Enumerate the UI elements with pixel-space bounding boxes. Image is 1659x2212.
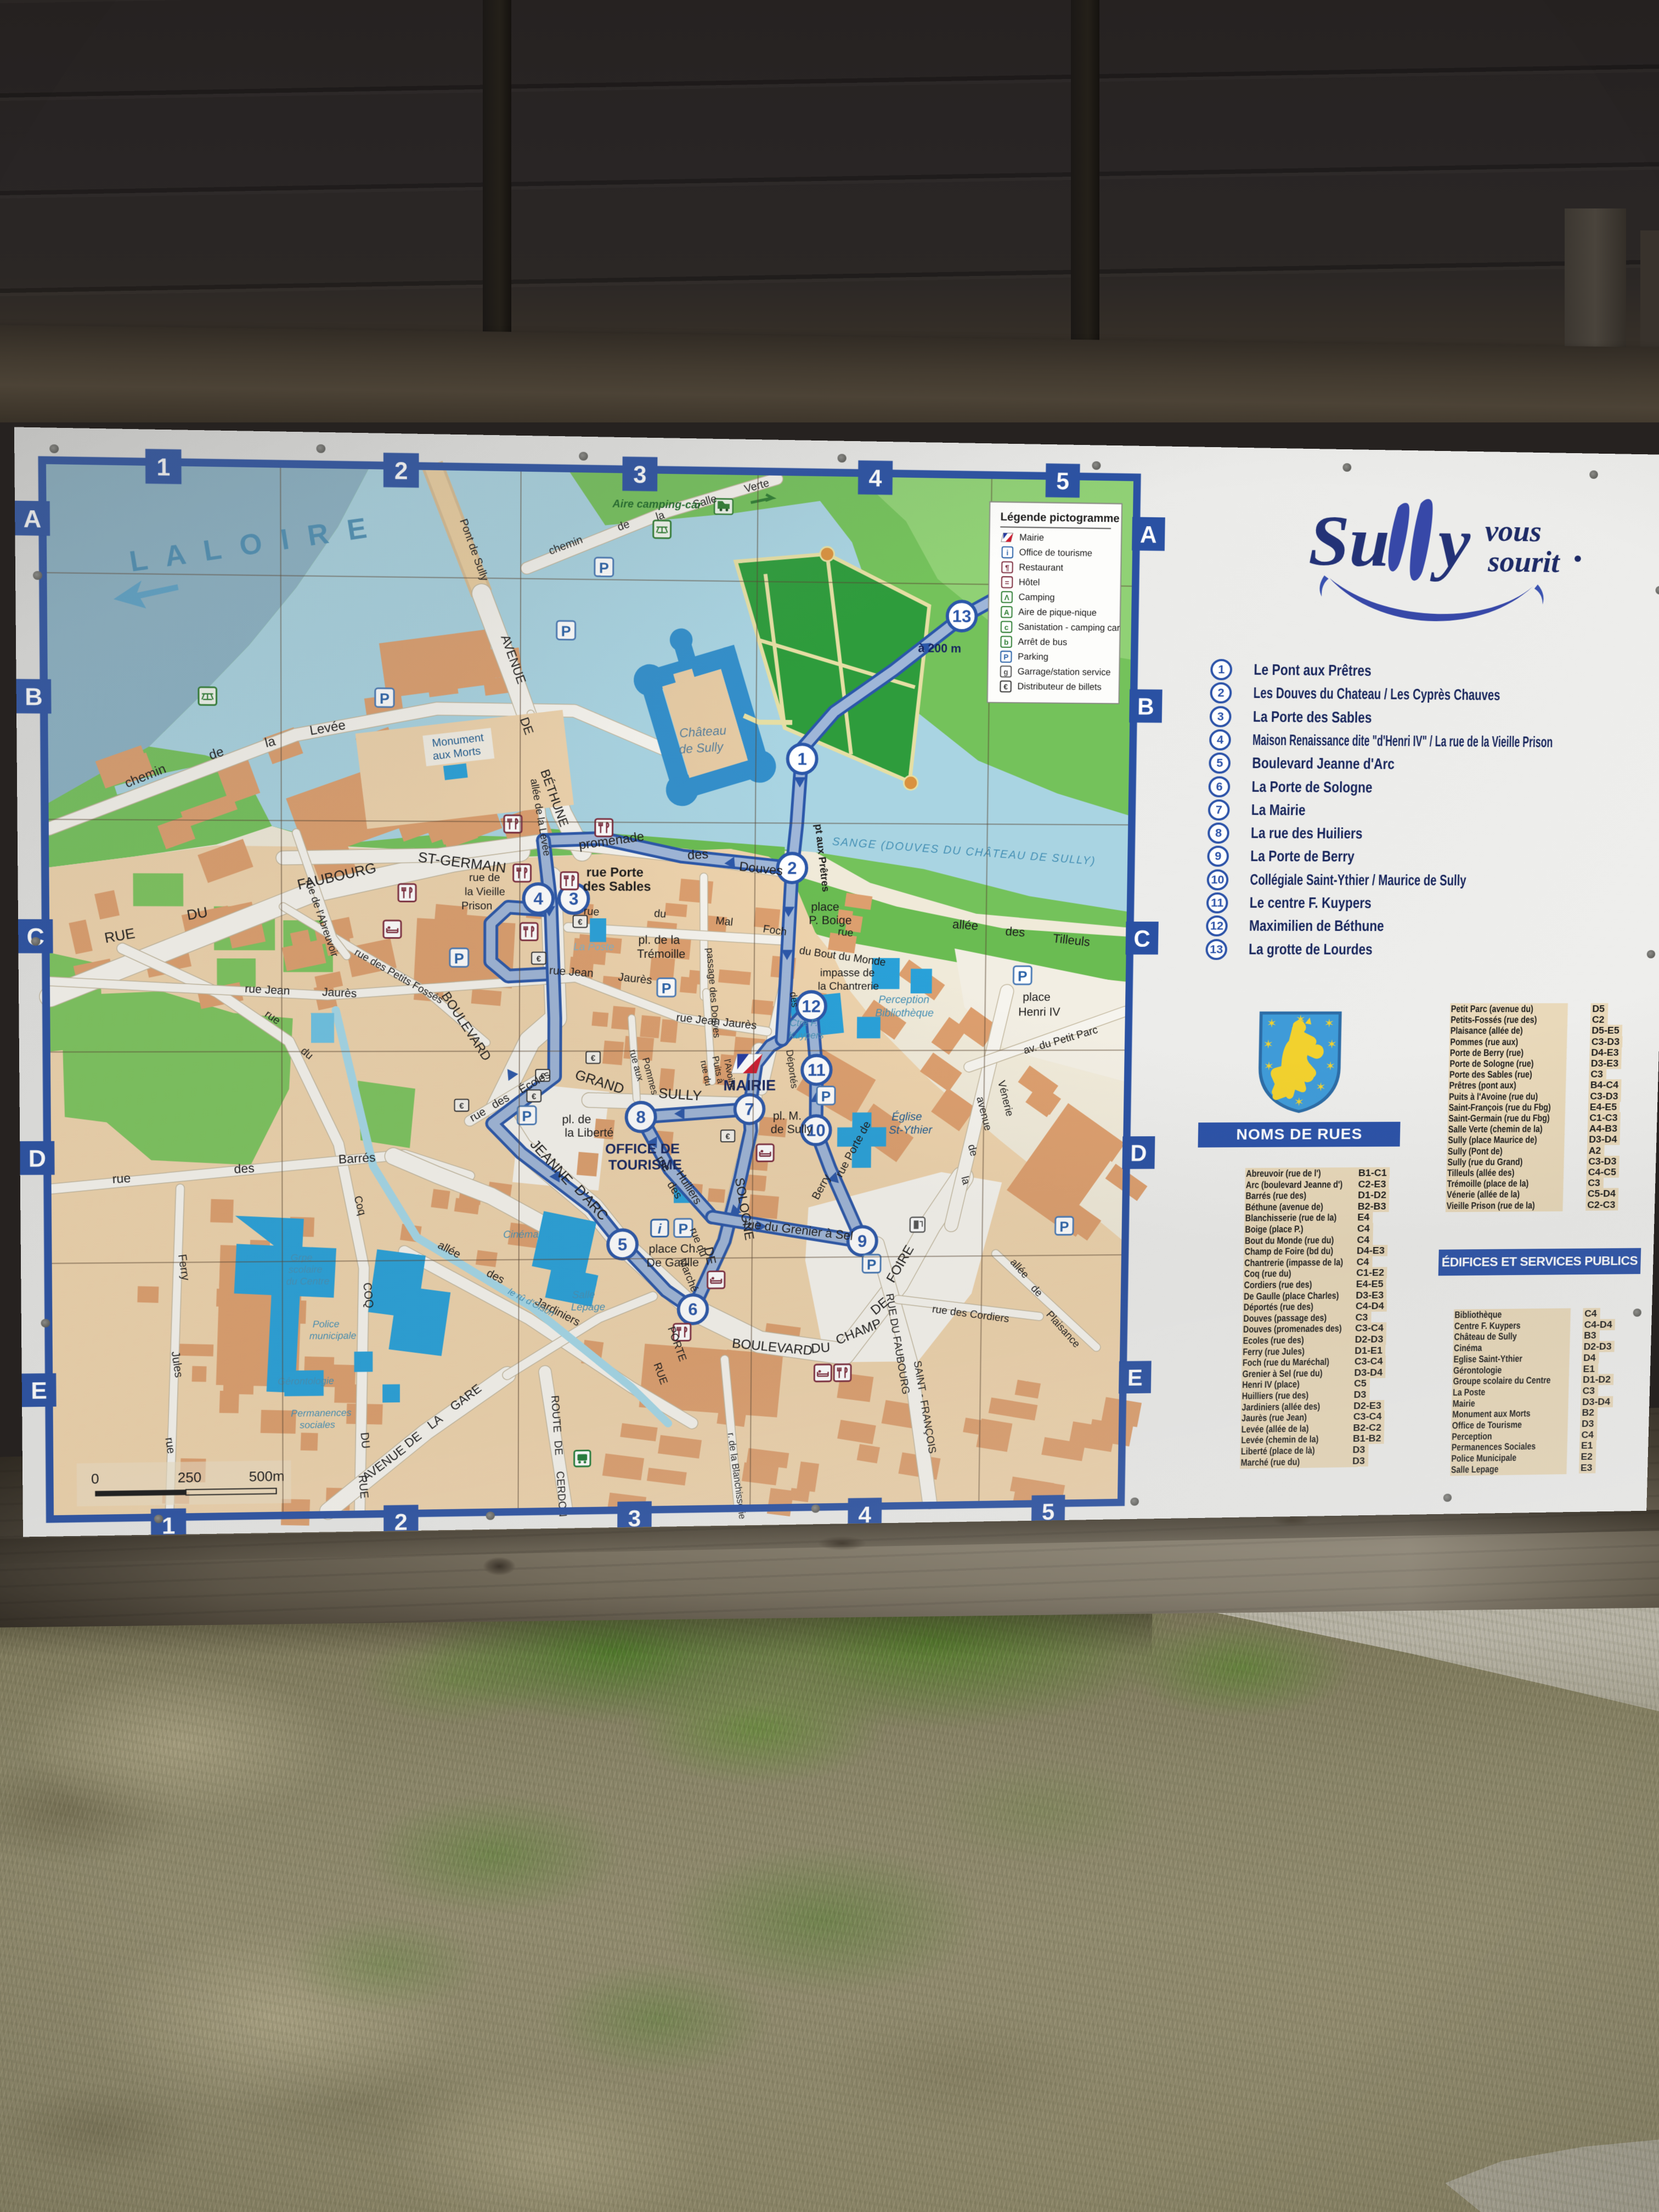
svg-text:des: des — [687, 847, 709, 862]
svg-text:scolaire: scolaire — [289, 1263, 323, 1274]
svg-text:P: P — [1003, 653, 1009, 662]
svg-text:Lepage: Lepage — [571, 1301, 605, 1313]
svg-text:5: 5 — [618, 1235, 628, 1255]
svg-text:P. Boige: P. Boige — [809, 913, 852, 927]
svg-text:1: 1 — [156, 453, 170, 481]
svg-text:B: B — [1137, 693, 1154, 720]
svg-text:€: € — [459, 1102, 464, 1110]
svg-text:ROUTE: ROUTE — [549, 1395, 563, 1433]
svg-text:€: € — [537, 955, 541, 963]
svg-text:€: € — [532, 1092, 537, 1101]
svg-text:g: g — [1003, 668, 1008, 676]
svg-text:P: P — [821, 1088, 831, 1104]
svg-text:✶: ✶ — [1316, 1081, 1326, 1094]
svg-text:✶: ✶ — [1327, 1038, 1337, 1051]
svg-text:Camping: Camping — [1018, 591, 1054, 602]
svg-text:rue: rue — [112, 1171, 131, 1187]
svg-text:Henri IV: Henri IV — [1018, 1005, 1060, 1018]
svg-text:rue Jean: rue Jean — [245, 982, 290, 997]
svg-text:pl. de: pl. de — [562, 1112, 591, 1126]
svg-text:D: D — [1130, 1140, 1147, 1166]
svg-text:Légende pictogramme: Légende pictogramme — [1000, 510, 1120, 524]
svg-text:P: P — [522, 1108, 532, 1124]
svg-text:Église: Église — [891, 1110, 922, 1123]
svg-text:c: c — [1005, 624, 1009, 632]
svg-text:i: i — [658, 1221, 662, 1237]
svg-text:la Vieille: la Vieille — [465, 885, 505, 898]
svg-text:€: € — [578, 918, 583, 927]
svg-text:Sanistation - camping car: Sanistation - camping car — [1018, 622, 1120, 633]
svg-text:rue: rue — [583, 905, 600, 918]
svg-text:✶: ✶ — [1263, 1038, 1273, 1052]
svg-text:Distributeur de billets: Distributeur de billets — [1017, 681, 1102, 692]
svg-text:€: € — [1003, 683, 1008, 691]
svg-text:E: E — [1127, 1365, 1143, 1391]
svg-text:250: 250 — [178, 1470, 202, 1486]
svg-text:Aire camping-car: Aire camping-car — [612, 498, 702, 511]
svg-text:500m: 500m — [249, 1469, 285, 1485]
svg-text:sourit: sourit — [1487, 545, 1561, 579]
svg-text:4: 4 — [533, 889, 543, 909]
svg-text:Gérontologie: Gérontologie — [278, 1375, 334, 1387]
svg-text:2: 2 — [394, 457, 408, 484]
svg-text:€: € — [725, 1132, 730, 1141]
svg-text:E: E — [31, 1377, 47, 1404]
svg-text:Ctre F.: Ctre F. — [789, 1017, 817, 1028]
svg-text:i: i — [1006, 549, 1008, 557]
svg-text:P: P — [599, 560, 609, 576]
svg-text:D: D — [28, 1145, 46, 1172]
svg-text:rue de: rue de — [469, 872, 500, 884]
svg-text:des: des — [1005, 924, 1026, 940]
svg-text:vous: vous — [1485, 514, 1542, 548]
svg-text:C: C — [1133, 926, 1150, 952]
svg-text:0: 0 — [91, 1471, 99, 1487]
svg-text:13: 13 — [952, 607, 972, 627]
svg-text:Barrés: Barrés — [338, 1150, 376, 1166]
svg-text:Cinéma: Cinéma — [503, 1229, 539, 1240]
svg-text:Perception: Perception — [878, 994, 929, 1006]
svg-text:Mal: Mal — [715, 915, 733, 928]
svg-text:11: 11 — [808, 1061, 826, 1080]
svg-text:¶: ¶ — [1005, 564, 1009, 572]
svg-text:8: 8 — [636, 1108, 646, 1127]
svg-text:DU: DU — [811, 1340, 831, 1356]
svg-text:P: P — [1018, 968, 1028, 984]
svg-text:de Sully: de Sully — [679, 740, 725, 757]
svg-text:la Liberté: la Liberté — [565, 1126, 613, 1139]
svg-text:Bibliothèque: Bibliothèque — [875, 1007, 934, 1019]
svg-text:6: 6 — [688, 1300, 698, 1319]
svg-text:pl. M.: pl. M. — [773, 1109, 802, 1122]
svg-text:P: P — [867, 1257, 877, 1273]
svg-text:SULLY: SULLY — [658, 1085, 702, 1104]
svg-text:Su: Su — [1308, 500, 1391, 581]
svg-text:P: P — [679, 1221, 689, 1237]
svg-text:Office de tourisme: Office de tourisme — [1019, 547, 1093, 558]
svg-text:Parking: Parking — [1018, 651, 1048, 662]
svg-text:Restaurant: Restaurant — [1019, 562, 1063, 573]
svg-text:12: 12 — [802, 997, 821, 1017]
svg-text:y: y — [1430, 503, 1471, 583]
svg-text:du: du — [653, 907, 667, 920]
svg-text:des: des — [234, 1161, 255, 1177]
svg-text:✶: ✶ — [1294, 1096, 1304, 1109]
svg-text:4: 4 — [868, 465, 882, 492]
svg-text:OFFICE DE: OFFICE DE — [605, 1141, 680, 1157]
svg-text:place: place — [811, 900, 839, 913]
svg-text:Trémoille: Trémoille — [637, 947, 685, 961]
svg-text:B: B — [25, 683, 43, 710]
svg-text:A: A — [1140, 521, 1157, 548]
svg-text:A: A — [23, 505, 41, 533]
svg-text:P: P — [380, 690, 390, 707]
svg-text:P: P — [561, 623, 571, 639]
svg-text:✶: ✶ — [1324, 1017, 1334, 1030]
svg-text:€: € — [591, 1054, 596, 1063]
svg-text:allée: allée — [952, 917, 979, 933]
svg-text:la Chantrerie: la Chantrerie — [818, 980, 879, 992]
svg-text:pl. de la: pl. de la — [638, 933, 680, 946]
svg-text:municipale: municipale — [309, 1330, 357, 1341]
svg-text:rue: rue — [837, 926, 854, 939]
svg-text:des: des — [788, 991, 800, 1008]
svg-text:Château: Château — [679, 724, 726, 741]
svg-text:P: P — [454, 950, 464, 967]
svg-text:rue: rue — [163, 1436, 178, 1454]
svg-text:La Poste: La Poste — [573, 941, 614, 953]
svg-text:b: b — [1004, 639, 1009, 647]
svg-text:2: 2 — [787, 859, 797, 878]
svg-text:Hôtel: Hôtel — [1019, 577, 1040, 588]
svg-text:à 200 m: à 200 m — [918, 641, 961, 655]
svg-text:9: 9 — [857, 1232, 867, 1251]
svg-text:Prison: Prison — [461, 900, 492, 912]
svg-text:Kuypers: Kuypers — [788, 1030, 823, 1041]
svg-text:Garrage/station service: Garrage/station service — [1018, 666, 1111, 678]
svg-text:place Ch.: place Ch. — [649, 1242, 699, 1255]
svg-text:Police: Police — [313, 1318, 340, 1329]
svg-text:=: = — [1005, 579, 1009, 587]
svg-text:P: P — [662, 980, 672, 996]
svg-text:Mairie: Mairie — [1019, 532, 1044, 543]
svg-text:Λ: Λ — [1005, 594, 1010, 602]
svg-text:1: 1 — [162, 1513, 176, 1537]
svg-text:5: 5 — [1056, 467, 1069, 494]
svg-text:Arrêt de bus: Arrêt de bus — [1018, 636, 1067, 647]
svg-text:3: 3 — [633, 461, 647, 488]
svg-text:✶: ✶ — [1325, 1060, 1335, 1073]
svg-text:Permanences: Permanences — [291, 1407, 351, 1419]
svg-text:✶: ✶ — [1266, 1017, 1277, 1031]
svg-text:A: A — [1004, 609, 1010, 617]
svg-text:P: P — [1059, 1219, 1069, 1235]
svg-text:rue Porte: rue Porte — [586, 866, 644, 880]
svg-text:de Sully: de Sully — [771, 1122, 813, 1136]
svg-text:DU: DU — [358, 1432, 373, 1449]
svg-text:3: 3 — [569, 889, 579, 909]
svg-text:Jaurès: Jaurès — [322, 985, 357, 1000]
svg-text:sociales: sociales — [300, 1419, 335, 1431]
svg-text:place: place — [1023, 990, 1051, 1003]
svg-text:St-Ythier: St-Ythier — [889, 1123, 933, 1136]
svg-text:du Centre: du Centre — [286, 1276, 330, 1287]
svg-text:des Sables: des Sables — [583, 879, 651, 894]
svg-text:Salle: Salle — [572, 1289, 595, 1301]
svg-text:1: 1 — [797, 749, 807, 769]
svg-text:impasse de: impasse de — [820, 967, 875, 979]
svg-text:Aire de pique-nique: Aire de pique-nique — [1018, 607, 1097, 618]
svg-text:DE: DE — [552, 1440, 565, 1456]
svg-text:COQ: COQ — [361, 1282, 376, 1309]
